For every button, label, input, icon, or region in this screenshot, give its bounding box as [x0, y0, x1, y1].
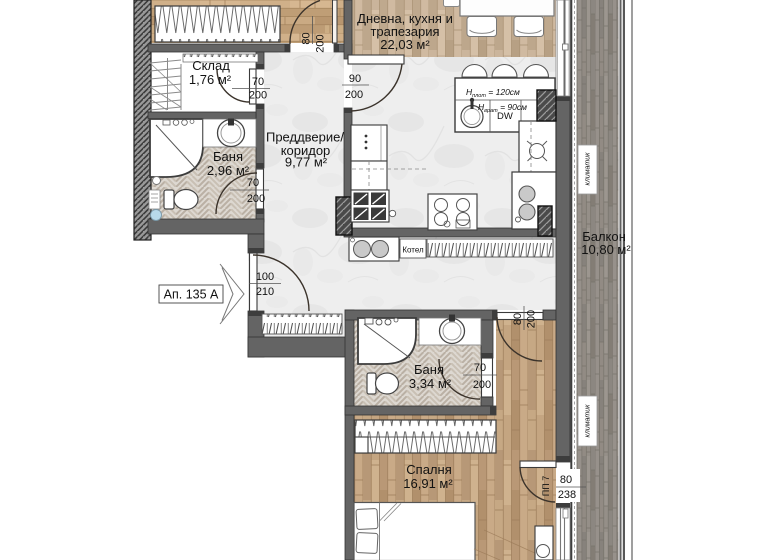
- svg-text:80: 80: [512, 313, 524, 325]
- svg-text:100: 100: [256, 271, 274, 283]
- svg-text:200: 200: [315, 34, 327, 52]
- svg-text:80: 80: [301, 32, 313, 44]
- svg-text:70: 70: [252, 76, 264, 88]
- svg-text:70: 70: [247, 177, 259, 189]
- svg-text:9,77 м²: 9,77 м²: [285, 155, 328, 170]
- svg-text:3,34 м²: 3,34 м²: [409, 376, 452, 391]
- svg-text:климатик: климатик: [585, 404, 592, 438]
- svg-text:Спалня: Спалня: [406, 462, 451, 477]
- svg-text:климатик: климатик: [585, 152, 592, 186]
- svg-text:90: 90: [349, 73, 361, 85]
- svg-text:200: 200: [526, 310, 538, 328]
- svg-text:Склад: Склад: [192, 58, 230, 73]
- svg-text:200: 200: [345, 89, 363, 101]
- svg-text:22,03 м²: 22,03 м²: [380, 37, 430, 52]
- svg-text:80: 80: [560, 474, 572, 486]
- svg-text:Ап. 135 А: Ап. 135 А: [164, 288, 219, 302]
- svg-text:Баня: Баня: [213, 149, 243, 164]
- svg-text:10,80 м²: 10,80 м²: [581, 242, 631, 257]
- svg-text:200: 200: [473, 379, 491, 391]
- svg-text:238: 238: [558, 489, 576, 501]
- svg-text:70: 70: [474, 362, 486, 374]
- svg-text:Котел: Котел: [402, 246, 424, 255]
- svg-text:210: 210: [256, 286, 274, 298]
- svg-text:2,96 м²: 2,96 м²: [207, 163, 250, 178]
- svg-text:ПП 7: ПП 7: [541, 476, 551, 496]
- svg-text:1,76 м²: 1,76 м²: [189, 72, 232, 87]
- svg-text:200: 200: [247, 193, 265, 205]
- svg-text:200: 200: [249, 90, 267, 102]
- svg-text:Баня: Баня: [414, 362, 444, 377]
- svg-text:16,91 м²: 16,91 м²: [403, 476, 453, 491]
- svg-text:DW: DW: [497, 111, 513, 122]
